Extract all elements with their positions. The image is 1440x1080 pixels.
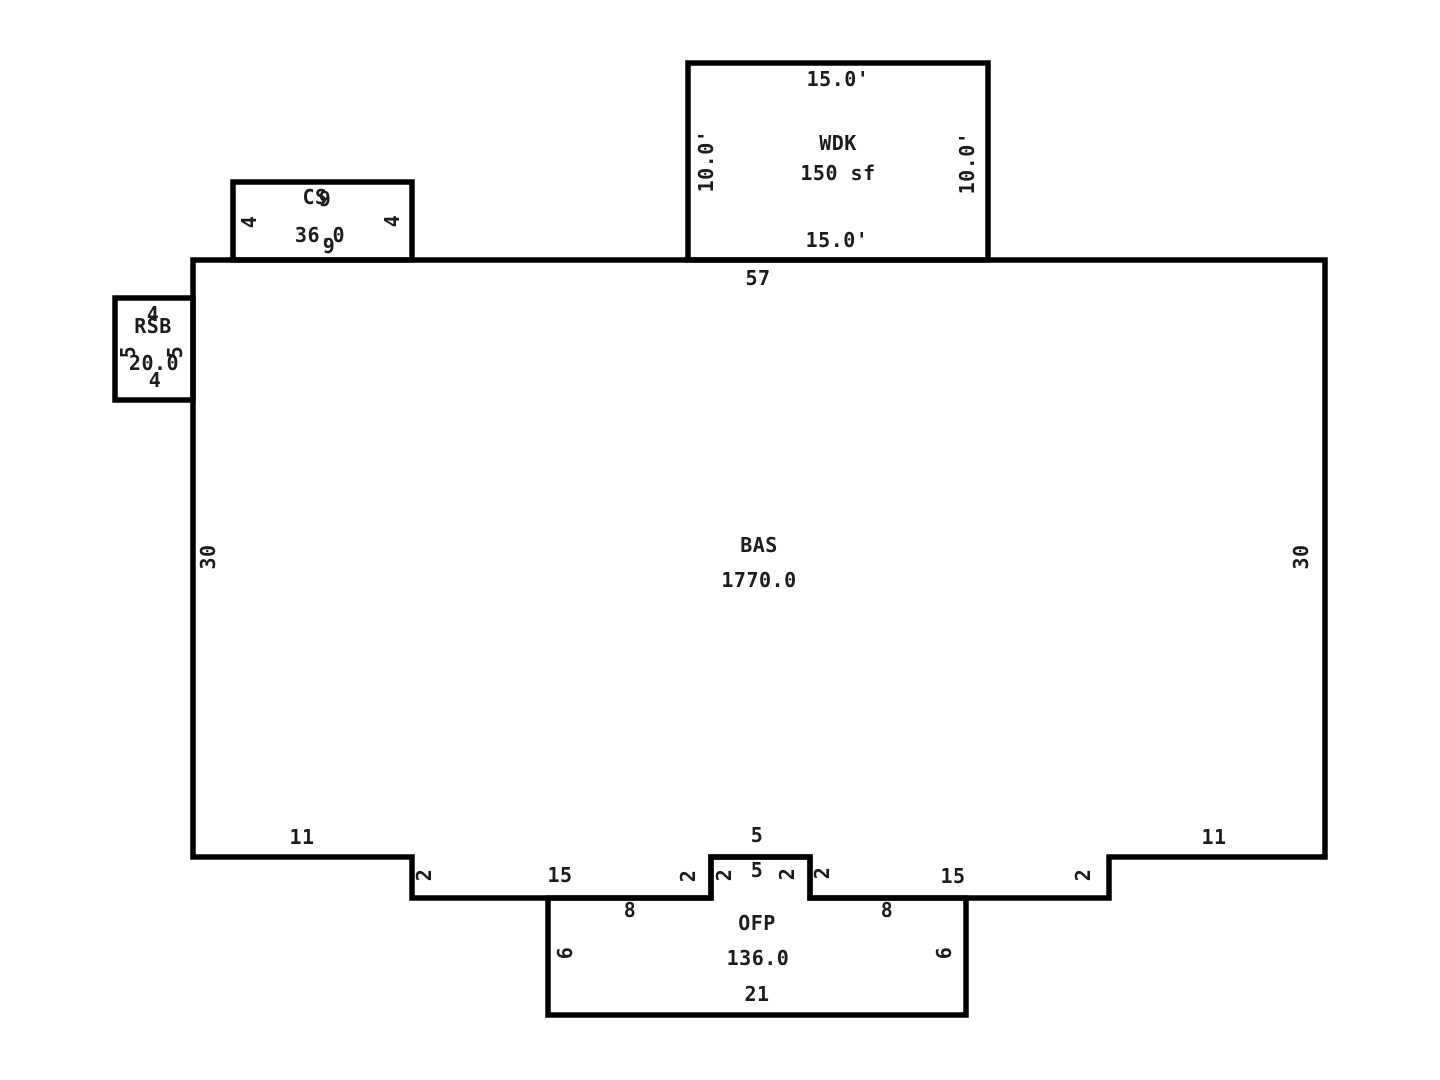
ofp-right-dim: 6 xyxy=(934,947,954,960)
floorplan-sketch: 15.0' WDK 150 sf 10.0' 10.0' 15.0' CS 9 … xyxy=(0,0,1440,1080)
bas-left-dim: 30 xyxy=(198,544,218,569)
ofp-area: 136.0 xyxy=(727,948,790,968)
rsb-label: RSB xyxy=(134,316,172,336)
wdk-bottom-dim: 15.0' xyxy=(806,230,869,250)
cs-area: 36.0 xyxy=(295,225,345,245)
ofp-left-dim: 6 xyxy=(555,947,575,960)
ofp-bump-inner-left-dim: 2 xyxy=(714,869,734,882)
bas-shelf-right-dim: 15 xyxy=(940,866,965,886)
bas-shelf-left-dim: 15 xyxy=(547,865,572,885)
ofp-label: OFP xyxy=(738,913,776,933)
bas-bump-side-right-dim: 2 xyxy=(812,867,832,880)
ofp-top-right-dim: 8 xyxy=(881,900,894,920)
cs-left-dim: 4 xyxy=(239,216,259,229)
bas-label: BAS xyxy=(740,535,778,555)
bas-right-dim: 30 xyxy=(1291,544,1311,569)
wdk-area: 150 sf xyxy=(800,163,875,183)
bas-step-right-dim: 2 xyxy=(1073,869,1093,882)
bas-bottom-right-dim: 11 xyxy=(1201,827,1226,847)
bas-bottom-left-dim: 11 xyxy=(289,827,314,847)
bas-area: 1770.0 xyxy=(721,570,796,590)
bas-bump-top-dim: 5 xyxy=(751,825,764,845)
bas-top-dim: 57 xyxy=(745,268,770,288)
cs-top-dim: 9 xyxy=(319,189,332,209)
floorplan-outline xyxy=(0,0,1440,1080)
ofp-bump-inner-dim: 5 xyxy=(751,860,764,880)
rsb-bottom-dim: 4 xyxy=(149,370,162,390)
wdk-left-dim: 10.0' xyxy=(696,130,716,193)
ofp-bottom-dim: 21 xyxy=(744,984,769,1004)
wdk-right-dim: 10.0' xyxy=(957,132,977,195)
wdk-top-dim: 15.0' xyxy=(807,69,870,89)
rsb-right-dim: 5 xyxy=(165,346,185,359)
ofp-top-left-dim: 8 xyxy=(624,900,637,920)
ofp-bump-inner-right-dim: 2 xyxy=(777,868,797,881)
bas-bump-side-left-dim: 2 xyxy=(678,870,698,883)
wdk-label: WDK xyxy=(819,133,857,153)
bas-step-left-dim: 2 xyxy=(414,869,434,882)
cs-bottom-dim: 9 xyxy=(323,236,336,256)
cs-right-dim: 4 xyxy=(382,215,402,228)
